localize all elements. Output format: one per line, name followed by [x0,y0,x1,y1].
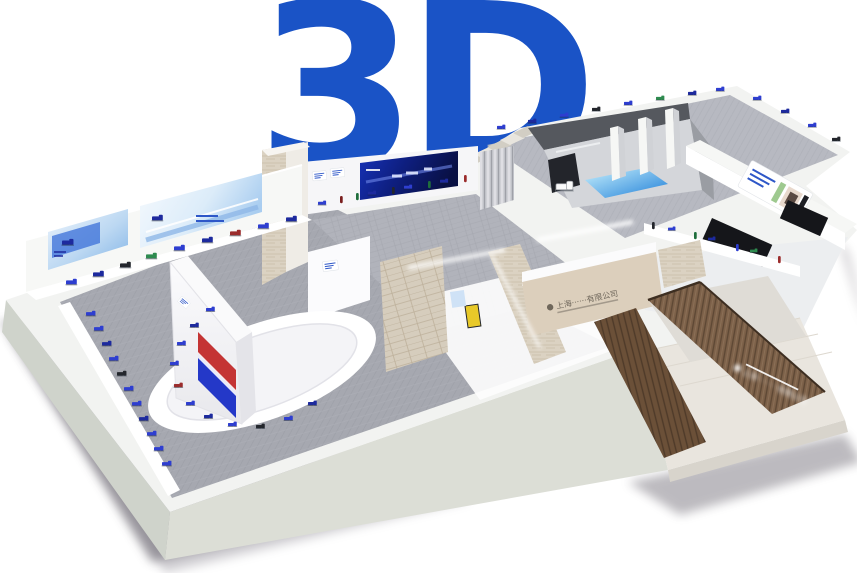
exhibit-truck-icon[interactable] [808,123,817,128]
exhibit-truck-icon[interactable] [592,107,601,112]
exhibit-item-icon[interactable] [340,196,343,203]
exhibit-item-icon[interactable] [694,232,697,239]
wall-info-card[interactable] [322,260,339,272]
wall-info-card[interactable] [330,168,345,178]
yellow-poster[interactable] [465,304,481,328]
exhibit-truck-icon[interactable] [656,96,665,101]
exhibit-item-icon[interactable] [392,187,395,194]
exhibit-truck-icon[interactable] [624,101,633,106]
exhibit-truck-icon[interactable] [716,87,725,92]
blue-sign[interactable] [450,290,466,308]
exhibit-truck-icon[interactable] [781,109,790,114]
exhibit-truck-icon[interactable] [688,91,697,96]
exhibit-truck-icon[interactable] [832,137,841,142]
exhibit-item-icon[interactable] [428,181,431,188]
exhibition-3d-map: 3D [0,0,857,573]
exhibit-item-icon[interactable] [356,193,359,200]
exhibit-item-icon[interactable] [778,256,781,263]
travertine-grid-wall [380,246,448,372]
exhibit-item-icon[interactable] [652,222,655,229]
wall-info-card[interactable] [312,171,327,181]
exhibit-item-icon[interactable] [464,175,467,182]
exhibit-item-icon[interactable] [736,244,739,251]
pleated-panel [480,146,514,210]
